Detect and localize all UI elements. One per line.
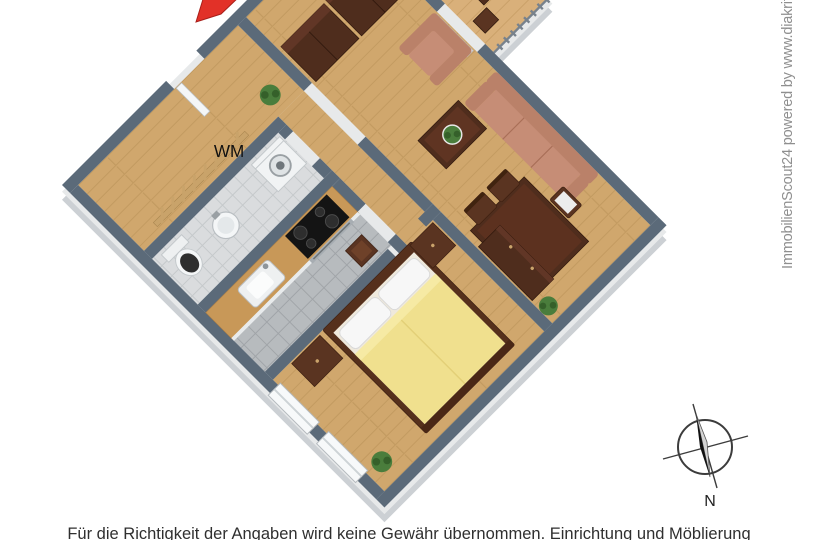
disclaimer-text: Für die Richtigkeit der Angaben wird kei… <box>67 525 750 540</box>
floor-plan-page: WM <box>0 0 818 540</box>
washing-machine-label: WM <box>214 142 244 161</box>
watermark-text: ImmobilienScout24 powered by www.diakrit… <box>780 0 796 269</box>
floor-plan-image: WM <box>0 0 818 540</box>
compass-north-label: N <box>704 493 716 510</box>
wm-label-group: WM <box>214 142 244 161</box>
